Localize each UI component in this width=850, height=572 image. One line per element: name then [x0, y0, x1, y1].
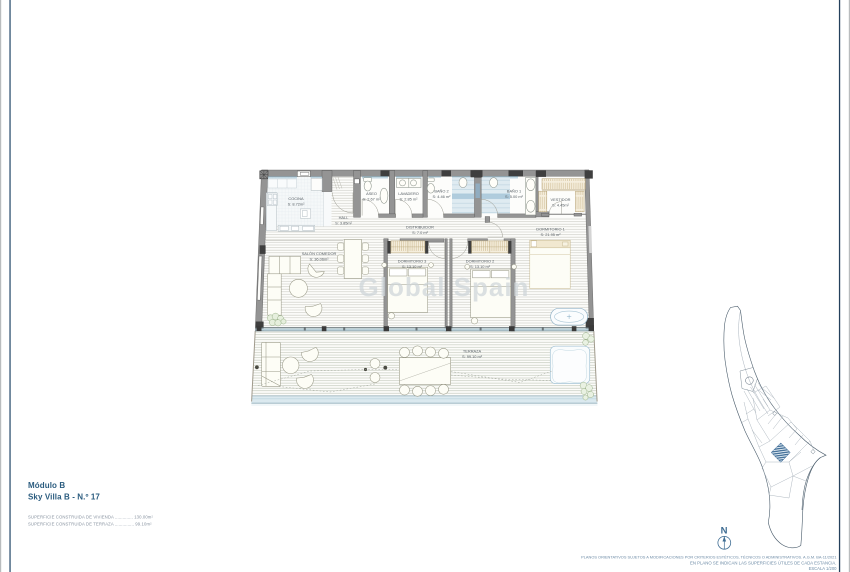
svg-text:SALÓN COMEDOR: SALÓN COMEDOR	[302, 251, 337, 256]
svg-text:VESTIDOR: VESTIDOR	[551, 197, 571, 202]
svg-text:Sky Villa B - N.º 17: Sky Villa B - N.º 17	[28, 493, 100, 502]
svg-text:S: 7.0 m²: S: 7.0 m²	[412, 230, 428, 235]
svg-text:S: 4.45m²: S: 4.45m²	[552, 203, 570, 208]
svg-text:COCINA: COCINA	[288, 196, 304, 201]
svg-text:DORMITORIO 3: DORMITORIO 3	[398, 259, 426, 264]
svg-text:S: 8.72m²: S: 8.72m²	[288, 202, 306, 207]
svg-text:S: 2.85 m²: S: 2.85 m²	[400, 197, 419, 202]
svg-text:S: 5.00 m²: S: 5.00 m²	[505, 194, 524, 199]
svg-text:SUPERFICIE CONSTRUIDA DE VIVIE: SUPERFICIE CONSTRUIDA DE VIVIENDA ......…	[28, 515, 153, 520]
svg-text:Módulo B: Módulo B	[28, 481, 65, 490]
svg-text:HALL: HALL	[339, 215, 350, 220]
svg-text:EN PLANO SE INDICAN LAS SUPERF: EN PLANO SE INDICAN LAS SUPERFICIES ÚTIL…	[690, 560, 837, 565]
svg-text:TERRAZA: TERRAZA	[463, 349, 482, 354]
svg-text:S: 36.06m²: S: 36.06m²	[309, 257, 329, 262]
svg-text:DORMITORIO 1: DORMITORIO 1	[536, 227, 564, 232]
svg-text:SUPERFICIE CONSTRUIDA DE TERRA: SUPERFICIE CONSTRUIDA DE TERRAZA .......…	[28, 522, 152, 527]
svg-text:BAÑO 2: BAÑO 2	[434, 189, 448, 194]
svg-text:PLANOS ORIENTATIVOS SUJETOS A: PLANOS ORIENTATIVOS SUJETOS A MODIFICACI…	[581, 554, 836, 559]
svg-text:DORMITORIO 2: DORMITORIO 2	[466, 259, 494, 264]
svg-text:BAÑO 1: BAÑO 1	[507, 189, 521, 194]
svg-text:S: 21.95 m²: S: 21.95 m²	[540, 232, 561, 237]
svg-text:ESCALA 1/200: ESCALA 1/200	[809, 566, 838, 571]
svg-text:S: 4.46 m²: S: 4.46 m²	[433, 194, 452, 199]
svg-text:ASEO: ASEO	[366, 191, 377, 196]
svg-text:S: 13.10 m²: S: 13.10 m²	[402, 264, 423, 269]
svg-text:DISTRIBUIDOR: DISTRIBUIDOR	[406, 225, 434, 230]
svg-text:S: 3.85m²: S: 3.85m²	[335, 221, 353, 226]
svg-text:S: 13.10 m²: S: 13.10 m²	[470, 264, 491, 269]
svg-text:Global Spain: Global Spain	[359, 272, 530, 302]
svg-text:LAVADERO: LAVADERO	[398, 191, 419, 196]
svg-text:S: 99.10 m²: S: 99.10 m²	[462, 354, 483, 359]
svg-text:S: 2.67 m²: S: 2.67 m²	[363, 197, 382, 202]
svg-text:N: N	[721, 526, 728, 537]
